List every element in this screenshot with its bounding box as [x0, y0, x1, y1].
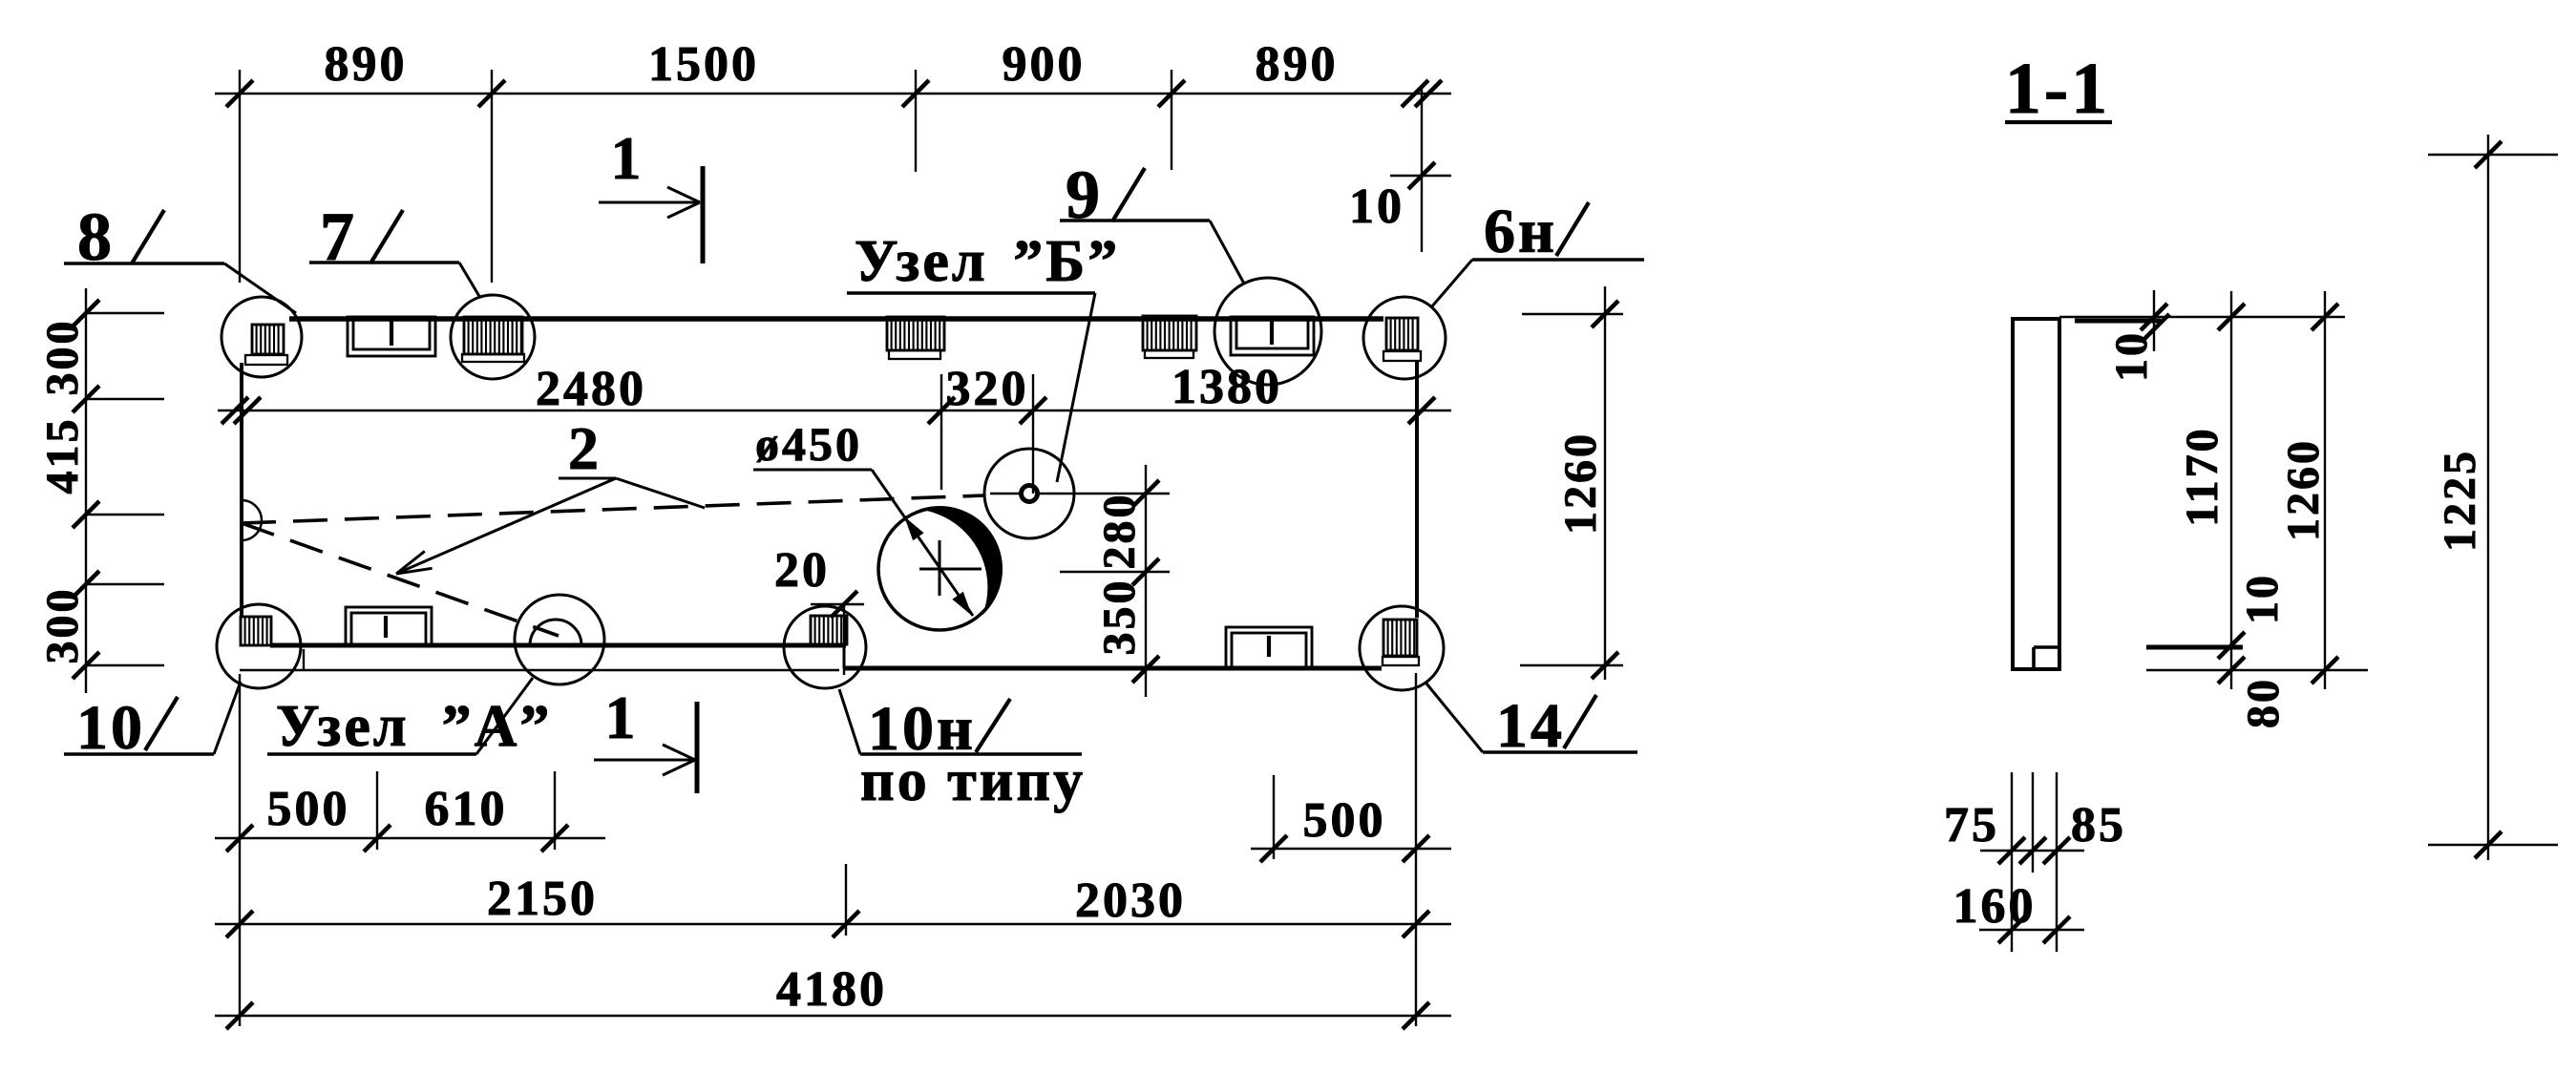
- svg-text:по типу: по типу: [860, 748, 1086, 813]
- svg-text:1: 1: [605, 684, 639, 751]
- svg-text:1170: 1170: [2177, 426, 2228, 526]
- svg-text:350: 350: [1094, 579, 1145, 656]
- svg-text:10: 10: [1349, 179, 1404, 234]
- svg-text:1-1: 1-1: [2005, 49, 2110, 129]
- svg-text:2480: 2480: [536, 362, 646, 416]
- svg-text:2: 2: [568, 414, 602, 482]
- svg-text:80: 80: [2238, 677, 2289, 728]
- svg-text:300: 300: [37, 319, 88, 396]
- svg-text:85: 85: [2071, 798, 2126, 852]
- svg-text:20: 20: [774, 543, 830, 598]
- svg-text:500: 500: [267, 782, 350, 836]
- svg-text:890: 890: [1256, 37, 1339, 92]
- svg-text:900: 900: [1003, 37, 1086, 92]
- svg-text:1260: 1260: [2278, 438, 2329, 541]
- svg-text:Узел ”А”: Узел ”А”: [276, 694, 552, 759]
- svg-text:300: 300: [37, 587, 88, 664]
- svg-text:2030: 2030: [1075, 873, 1186, 928]
- svg-text:Узел ”Б”: Узел ”Б”: [855, 229, 1120, 294]
- svg-text:10: 10: [2106, 330, 2157, 382]
- svg-text:610: 610: [425, 782, 508, 836]
- svg-text:ø450: ø450: [755, 417, 862, 471]
- svg-text:1225: 1225: [2435, 449, 2485, 552]
- svg-text:1500: 1500: [648, 37, 759, 92]
- svg-text:10: 10: [2237, 573, 2288, 624]
- svg-text:320: 320: [946, 362, 1029, 416]
- svg-text:1380: 1380: [1172, 360, 1282, 414]
- svg-text:75: 75: [1944, 798, 1999, 852]
- svg-text:2150: 2150: [487, 872, 598, 926]
- svg-text:4180: 4180: [776, 962, 887, 1017]
- svg-text:1: 1: [611, 124, 644, 192]
- svg-text:10: 10: [76, 693, 145, 763]
- svg-text:890: 890: [325, 37, 408, 92]
- svg-text:500: 500: [1303, 793, 1386, 848]
- svg-text:415: 415: [37, 417, 88, 494]
- svg-text:6н: 6н: [1484, 197, 1557, 266]
- svg-text:14: 14: [1496, 691, 1565, 761]
- svg-text:280: 280: [1094, 493, 1145, 570]
- svg-text:160: 160: [1953, 879, 2037, 934]
- svg-text:1260: 1260: [1555, 431, 1606, 535]
